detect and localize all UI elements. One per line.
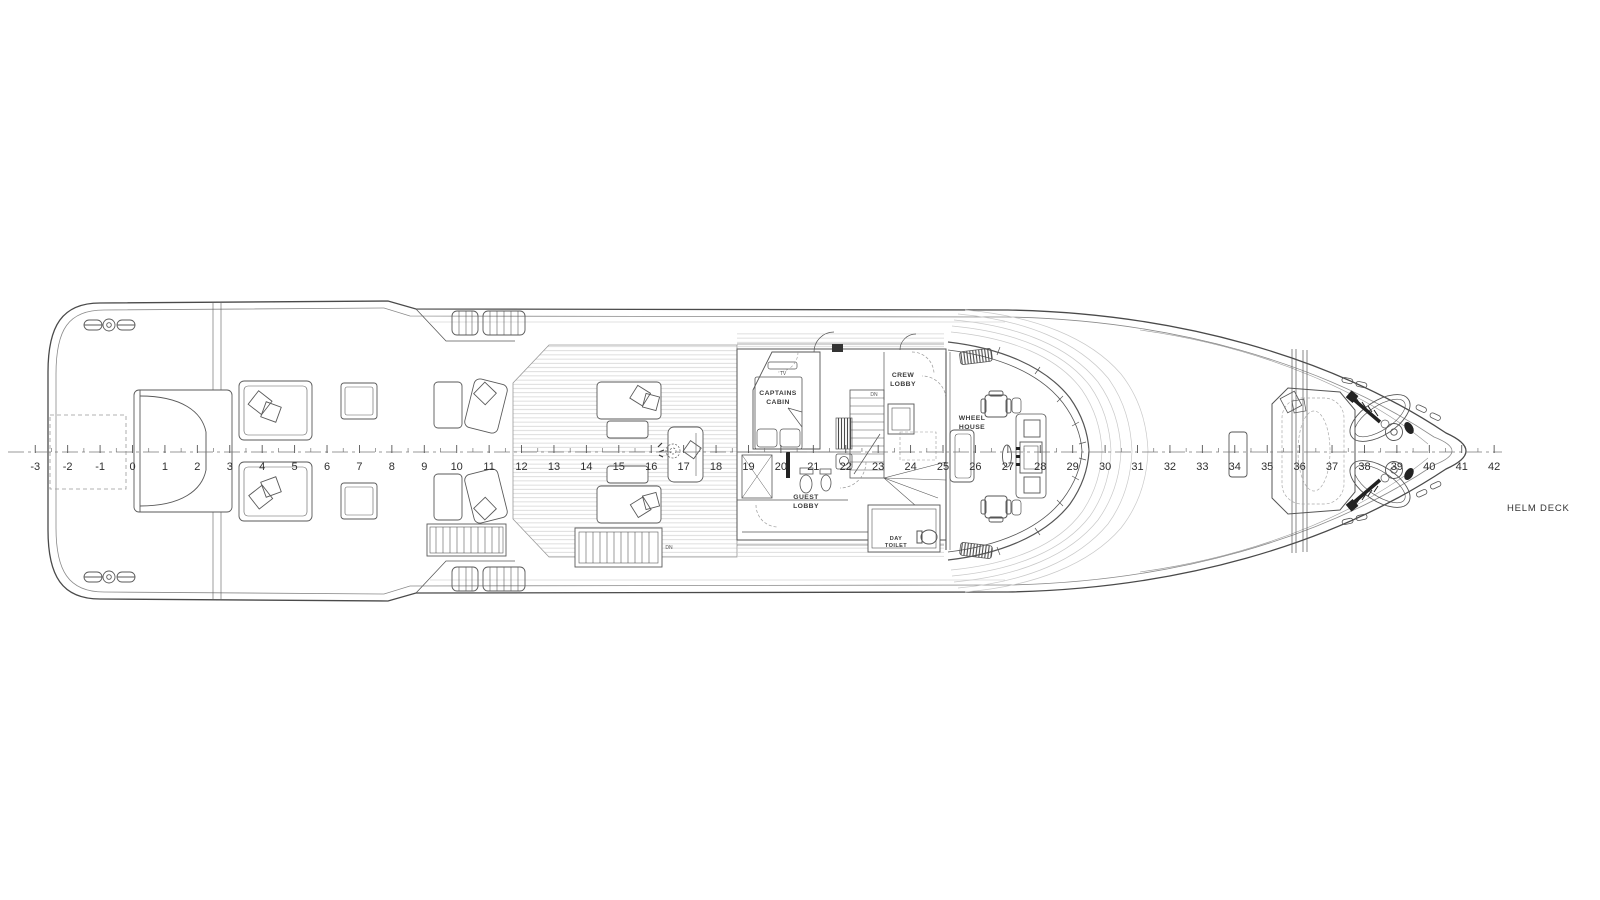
wheel-house-label-1: WHEEL [959, 415, 986, 422]
ruler-number: 36 [1293, 461, 1305, 473]
sun-deck [513, 345, 737, 567]
side-bench-top [341, 383, 377, 419]
cabin-block [737, 332, 950, 557]
ruler-number: 30 [1099, 461, 1111, 473]
ruler-number: 37 [1326, 461, 1338, 473]
ruler-number: 2 [194, 461, 200, 473]
ruler-number: 21 [807, 461, 819, 473]
ruler-number: 0 [129, 461, 135, 473]
ruler-number: 23 [872, 461, 884, 473]
deck-hatch-top [452, 311, 525, 335]
helm-chair-top [981, 391, 1021, 417]
bow-sunpad [1272, 388, 1355, 514]
aft-sofa-bottom [239, 462, 312, 521]
ruler-number: 14 [580, 461, 592, 473]
crew-lobby-label-2: LOBBY [890, 381, 916, 388]
aft-sofa-top [239, 381, 312, 440]
ruler-number: 33 [1196, 461, 1208, 473]
mid-deck [416, 309, 525, 593]
wheel-house-label-2: HOUSE [959, 424, 985, 431]
side-steps-top [959, 348, 992, 365]
ruler-number: 31 [1131, 461, 1143, 473]
ruler-number: 17 [678, 461, 690, 473]
crew-lobby-label-1: CREW [892, 372, 915, 379]
ruler-number: 16 [645, 461, 657, 473]
day-toilet-label-1: DAY [890, 536, 903, 542]
ruler-number: 22 [840, 461, 852, 473]
guest-lobby-label-2: LOBBY [793, 503, 819, 510]
deck-hatch-bottom [452, 567, 525, 591]
ruler-number: 20 [775, 461, 787, 473]
ruler-number: 19 [742, 461, 754, 473]
captains-cabin-label-1: CAPTAINS [759, 390, 797, 397]
boarding-grate [427, 524, 506, 556]
ruler-number: 40 [1423, 461, 1435, 473]
side-bench-bottom [341, 483, 377, 519]
ruler-number: -2 [63, 461, 73, 473]
ruler-number: -3 [30, 461, 40, 473]
side-table-top [434, 382, 462, 428]
ruler-number: 26 [969, 461, 981, 473]
captains-cabin-label-2: CABIN [766, 399, 790, 406]
yacht-deck-plan: -3-2-10123456789101112131415161718192021… [0, 0, 1600, 900]
ruler-number: 41 [1456, 461, 1468, 473]
ruler-number: 12 [515, 461, 527, 473]
ruler-number: 29 [1067, 461, 1079, 473]
ruler-number: 13 [548, 461, 560, 473]
tv-label: TV [780, 371, 787, 377]
ruler-number: 32 [1164, 461, 1176, 473]
ruler-number: 6 [324, 461, 330, 473]
guest-lobby-label-1: GUEST [793, 494, 819, 501]
dn-stairs-label: DN [870, 392, 878, 398]
ruler-number: 1 [162, 461, 168, 473]
ruler-number: 42 [1488, 461, 1500, 473]
lounger-bottom [463, 468, 508, 525]
ruler-number: 15 [613, 461, 625, 473]
helm-chair-bottom [981, 496, 1021, 522]
ruler-number: 9 [421, 461, 427, 473]
ruler-number: -1 [95, 461, 105, 473]
cleat-group-aft-top [84, 319, 135, 331]
sunpad-grate [575, 528, 662, 567]
side-table-bottom [434, 474, 462, 520]
ruler-number: 18 [710, 461, 722, 473]
ruler-number: 28 [1034, 461, 1046, 473]
wheelhouse [948, 310, 1148, 592]
dn-deck-label: DN [665, 545, 673, 551]
foredeck [1229, 349, 1442, 553]
ruler-number: 24 [904, 461, 916, 473]
ruler-number: 35 [1261, 461, 1273, 473]
ruler-number: 25 [937, 461, 949, 473]
ruler-number: 34 [1229, 461, 1241, 473]
ruler-number: 8 [389, 461, 395, 473]
helm-deck-drawing: -3-2-10123456789101112131415161718192021… [0, 0, 1600, 900]
transom-dashed-area [50, 415, 126, 489]
helm-console [1016, 414, 1046, 498]
ruler-number: 7 [356, 461, 362, 473]
ruler-number: 5 [292, 461, 298, 473]
ruler-number: 4 [259, 461, 265, 473]
ruler-number: 10 [451, 461, 463, 473]
ruler-number: 11 [483, 461, 494, 473]
day-toilet-label-2: TOILET [885, 543, 907, 549]
lounger-top [463, 378, 508, 435]
ruler-number: 38 [1358, 461, 1370, 473]
ruler-number: 3 [227, 461, 233, 473]
wheelhouse-settee [950, 430, 974, 482]
ruler-number: 27 [1002, 461, 1014, 473]
cleat-group-aft-bottom [84, 571, 135, 583]
ruler-number: 39 [1391, 461, 1403, 473]
deck-title: HELM DECK [1507, 503, 1570, 514]
